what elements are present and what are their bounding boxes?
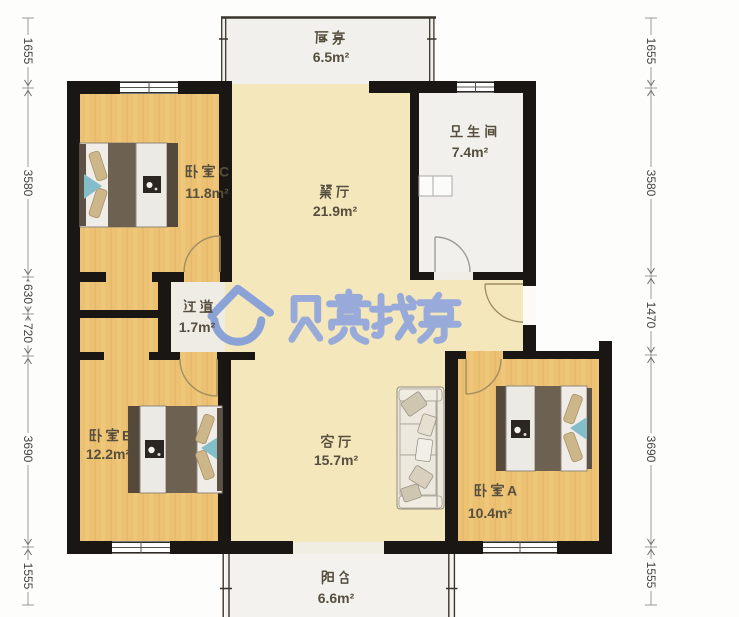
svg-text:720: 720 [21, 323, 35, 343]
svg-text:B: B [122, 428, 132, 444]
svg-text:21.9m²: 21.9m² [313, 203, 358, 219]
svg-text:3580: 3580 [644, 170, 658, 197]
svg-text:11.8m²: 11.8m² [185, 185, 229, 201]
svg-text:630: 630 [21, 284, 35, 304]
svg-text:3690: 3690 [21, 436, 35, 463]
svg-text:1655: 1655 [21, 38, 35, 65]
svg-text:10.4m²: 10.4m² [468, 505, 513, 521]
svg-text:7.4m²: 7.4m² [452, 144, 489, 160]
svg-text:1.7m²: 1.7m² [179, 319, 216, 335]
svg-text:3580: 3580 [21, 170, 35, 197]
svg-text:6.5m²: 6.5m² [313, 49, 350, 65]
svg-text:3690: 3690 [644, 436, 658, 463]
svg-text:15.7m²: 15.7m² [314, 452, 359, 468]
svg-text:1555: 1555 [21, 563, 35, 590]
svg-text:C: C [219, 164, 229, 180]
svg-text:1655: 1655 [644, 38, 658, 65]
svg-text:12.2m²: 12.2m² [86, 446, 131, 462]
svg-text:A: A [507, 483, 517, 499]
svg-text:6.6m²: 6.6m² [318, 590, 355, 606]
svg-text:1555: 1555 [644, 562, 658, 589]
svg-text:1470: 1470 [644, 302, 658, 329]
